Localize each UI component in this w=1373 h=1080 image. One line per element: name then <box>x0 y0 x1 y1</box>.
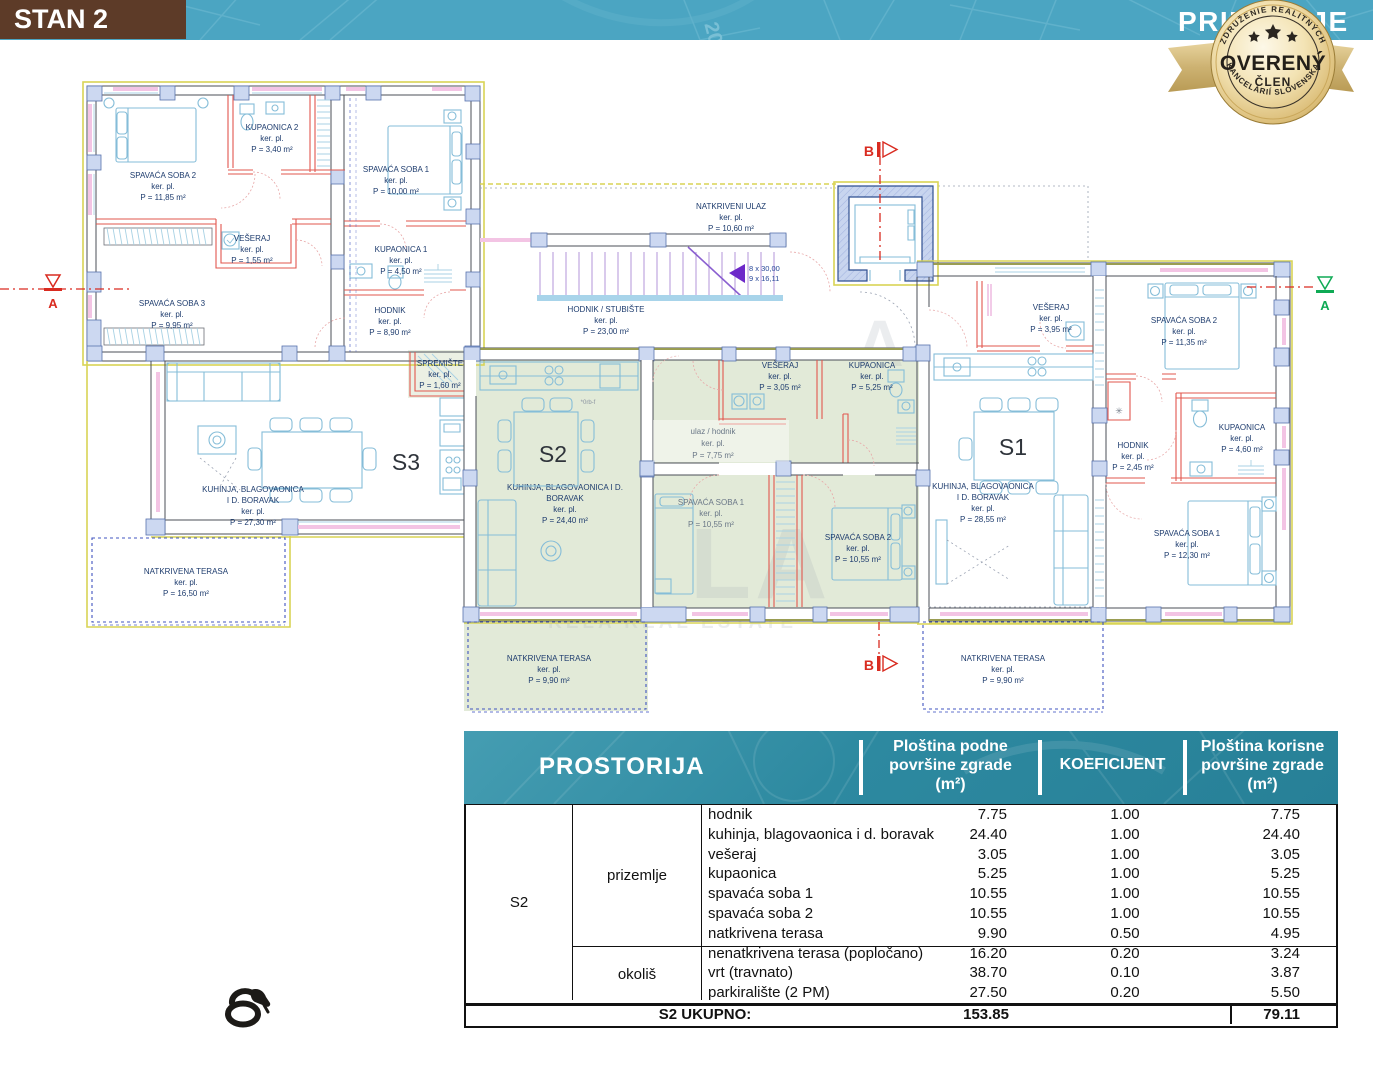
svg-text:ker. pl.: ker. pl. <box>1039 314 1063 323</box>
svg-text:KUPAONICA: KUPAONICA <box>849 361 896 370</box>
svg-text:P = 9,90 m²: P = 9,90 m² <box>982 676 1024 685</box>
svg-text:P = 3,05 m²: P = 3,05 m² <box>759 383 801 392</box>
svg-text:P = 27,30 m²: P = 27,30 m² <box>230 518 276 527</box>
svg-text:ker. pl.: ker. pl. <box>260 134 284 143</box>
svg-text:P = 10,00 m²: P = 10,00 m² <box>373 187 419 196</box>
svg-text:ker. pl.: ker. pl. <box>860 372 884 381</box>
svg-text:P = 1,55 m²: P = 1,55 m² <box>231 256 273 265</box>
svg-text:P = 8,90 m²: P = 8,90 m² <box>369 328 411 337</box>
svg-text:ker. pl.: ker. pl. <box>389 256 413 265</box>
svg-text:SPAVAĆA SOBA 2: SPAVAĆA SOBA 2 <box>1151 316 1218 325</box>
svg-text:ker. pl.: ker. pl. <box>846 544 870 553</box>
svg-text:ker. pl.: ker. pl. <box>384 176 408 185</box>
svg-text:ker. pl.: ker. pl. <box>701 439 725 448</box>
svg-text:ker. pl.: ker. pl. <box>240 245 264 254</box>
svg-text:P = 16,50 m²: P = 16,50 m² <box>163 589 209 598</box>
svg-text:KUPAONICA 2: KUPAONICA 2 <box>246 123 299 132</box>
svg-text:P = 4,50 m²: P = 4,50 m² <box>380 267 422 276</box>
svg-text:ker. pl.: ker. pl. <box>1121 452 1145 461</box>
svg-text:ČLEN: ČLEN <box>1255 74 1292 89</box>
svg-text:SPAVAĆA SOBA 3: SPAVAĆA SOBA 3 <box>139 299 206 308</box>
svg-text:SPREMIŠTE: SPREMIŠTE <box>417 359 463 368</box>
svg-text:VEŠERAJ: VEŠERAJ <box>762 361 798 370</box>
svg-text:*0rb-f: *0rb-f <box>581 400 596 406</box>
svg-text:ker. pl.: ker. pl. <box>537 665 561 674</box>
svg-text:OVERENÝ: OVERENÝ <box>1220 51 1326 75</box>
svg-text:SPAVAĆA SOBA 1: SPAVAĆA SOBA 1 <box>678 498 745 507</box>
svg-text:SPAVAĆA SOBA 2: SPAVAĆA SOBA 2 <box>825 533 892 542</box>
svg-text:P = 3,40 m²: P = 3,40 m² <box>251 145 293 154</box>
svg-text:P = 12,30 m²: P = 12,30 m² <box>1164 551 1210 560</box>
svg-text:S2: S2 <box>539 441 567 467</box>
svg-text:A: A <box>1320 298 1330 313</box>
svg-text:ker. pl.: ker. pl. <box>1230 434 1254 443</box>
svg-text:S3: S3 <box>392 449 420 475</box>
svg-text:HODNIK: HODNIK <box>1117 441 1149 450</box>
svg-text:✳: ✳ <box>1115 406 1123 416</box>
svg-text:NATKRIVENI ULAZ: NATKRIVENI ULAZ <box>696 202 766 211</box>
svg-text:B: B <box>864 657 874 673</box>
svg-text:A: A <box>48 296 58 311</box>
svg-text:BORAVAK: BORAVAK <box>546 494 584 503</box>
svg-text:ker. pl.: ker. pl. <box>174 578 198 587</box>
svg-text:P = 9,90 m²: P = 9,90 m² <box>528 676 570 685</box>
svg-text:I D. BORAVAK: I D. BORAVAK <box>957 493 1010 502</box>
svg-text:NATKRIVENA TERASA: NATKRIVENA TERASA <box>144 567 229 576</box>
svg-text:P = 11,85 m²: P = 11,85 m² <box>140 193 186 202</box>
svg-text:P = 10,55 m²: P = 10,55 m² <box>688 520 734 529</box>
svg-text:ker. pl.: ker. pl. <box>699 509 723 518</box>
svg-text:ker. pl.: ker. pl. <box>991 665 1015 674</box>
svg-text:ker. pl.: ker. pl. <box>1172 327 1196 336</box>
svg-text:NATKRIVENA TERASA: NATKRIVENA TERASA <box>961 654 1046 663</box>
svg-text:ulaz / hodnik: ulaz / hodnik <box>691 427 737 436</box>
svg-text:ker. pl.: ker. pl. <box>594 316 618 325</box>
svg-text:I D. BORAVAK: I D. BORAVAK <box>227 496 280 505</box>
svg-text:P = 9,95 m²: P = 9,95 m² <box>151 321 193 330</box>
svg-text:B: B <box>864 143 874 159</box>
svg-text:P = 10,55 m²: P = 10,55 m² <box>835 555 881 564</box>
svg-text:KUHINJA, BLAGOVAONICA I D.: KUHINJA, BLAGOVAONICA I D. <box>507 483 623 492</box>
svg-text:P = 28,55 m²: P = 28,55 m² <box>960 515 1006 524</box>
svg-text:VEŠERAJ: VEŠERAJ <box>1033 303 1069 312</box>
svg-text:ker. pl.: ker. pl. <box>241 507 265 516</box>
svg-text:ker. pl.: ker. pl. <box>768 372 792 381</box>
svg-text:P = 10,60 m²: P = 10,60 m² <box>708 224 754 233</box>
svg-text:P = 7,75 m²: P = 7,75 m² <box>692 451 734 460</box>
svg-text:ker. pl.: ker. pl. <box>378 317 402 326</box>
svg-text:HODNIK: HODNIK <box>374 306 406 315</box>
svg-text:P = 5,25 m²: P = 5,25 m² <box>851 383 893 392</box>
svg-text:P = 1,60 m²: P = 1,60 m² <box>419 381 461 390</box>
svg-text:ker. pl.: ker. pl. <box>160 310 184 319</box>
svg-text:NATKRIVENA TERASA: NATKRIVENA TERASA <box>507 654 592 663</box>
svg-text:P = 11,35 m²: P = 11,35 m² <box>1161 338 1207 347</box>
svg-text:P = 23,00 m²: P = 23,00 m² <box>583 327 629 336</box>
svg-text:KUHINJA, BLAGOVAONICA: KUHINJA, BLAGOVAONICA <box>202 485 304 494</box>
svg-text:P = 24,40 m²: P = 24,40 m² <box>542 516 588 525</box>
svg-text:ker. pl.: ker. pl. <box>151 182 175 191</box>
svg-text:S1: S1 <box>999 434 1027 460</box>
svg-text:SPAVAĆA SOBA 1: SPAVAĆA SOBA 1 <box>1154 529 1221 538</box>
svg-text:SPAVAĆA SOBA 2: SPAVAĆA SOBA 2 <box>130 171 197 180</box>
svg-text:9 x 16,11: 9 x 16,11 <box>749 274 779 283</box>
svg-text:ker. pl.: ker. pl. <box>719 213 743 222</box>
svg-text:ker. pl.: ker. pl. <box>553 505 577 514</box>
svg-text:ker. pl.: ker. pl. <box>1175 540 1199 549</box>
svg-text:8 x 30,00: 8 x 30,00 <box>749 264 780 273</box>
svg-text:KUPAONICA 1: KUPAONICA 1 <box>375 245 428 254</box>
svg-text:HODNIK / STUBIŠTE: HODNIK / STUBIŠTE <box>568 305 645 314</box>
svg-text:KUPAONICA: KUPAONICA <box>1219 423 1266 432</box>
svg-text:KUHINJA, BLAGOVAONICA: KUHINJA, BLAGOVAONICA <box>932 482 1034 491</box>
svg-text:P = 3,95 m²: P = 3,95 m² <box>1030 325 1072 334</box>
svg-text:P = 4,60 m²: P = 4,60 m² <box>1221 445 1263 454</box>
svg-text:P = 2,45 m²: P = 2,45 m² <box>1112 463 1154 472</box>
svg-text:SPAVAĆA SOBA 1: SPAVAĆA SOBA 1 <box>363 165 430 174</box>
svg-text:ker. pl.: ker. pl. <box>428 370 452 379</box>
svg-text:ker. pl.: ker. pl. <box>971 504 995 513</box>
svg-text:VEŠERAJ: VEŠERAJ <box>234 234 270 243</box>
